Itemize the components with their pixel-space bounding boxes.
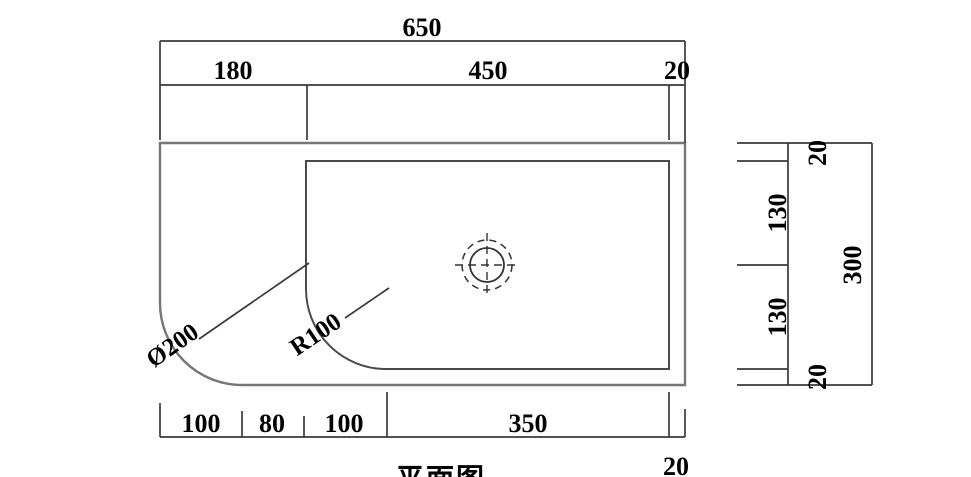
side-dim-top-20: 20 [803,140,832,166]
side-dimension-scale: 20 130 130 20 300 [737,140,872,390]
plan-view: Ø200 R100 [142,143,685,385]
top-dimension-chain: 650 180 450 20 [160,13,690,143]
dim-bottom-1: 100 [182,409,221,438]
faucet-hole-symbol [455,233,519,297]
side-dim-lower-130: 130 [763,298,792,337]
outer-diameter-label: Ø200 [142,318,204,373]
dim-total-width: 650 [403,13,442,42]
side-dim-bottom-20: 20 [803,364,832,390]
dim-bottom-right-offset: 20 [663,452,689,477]
dim-bottom-3: 100 [325,409,364,438]
drawing-caption: 平面图 [396,462,486,477]
dim-top-right: 20 [664,56,690,85]
technical-drawing-canvas: Ø200 R100 650 180 450 20 100 80 100 350 … [0,0,971,477]
countertop-outline [160,143,685,385]
dim-top-middle: 450 [469,56,508,85]
dim-bottom-2: 80 [259,409,285,438]
dim-top-left: 180 [214,56,253,85]
side-dim-total-300: 300 [838,246,867,285]
leader-line-outer-diameter [199,263,309,339]
leader-line-inner-radius [345,288,389,318]
dim-bottom-4: 350 [509,409,548,438]
side-dim-upper-130: 130 [763,194,792,233]
